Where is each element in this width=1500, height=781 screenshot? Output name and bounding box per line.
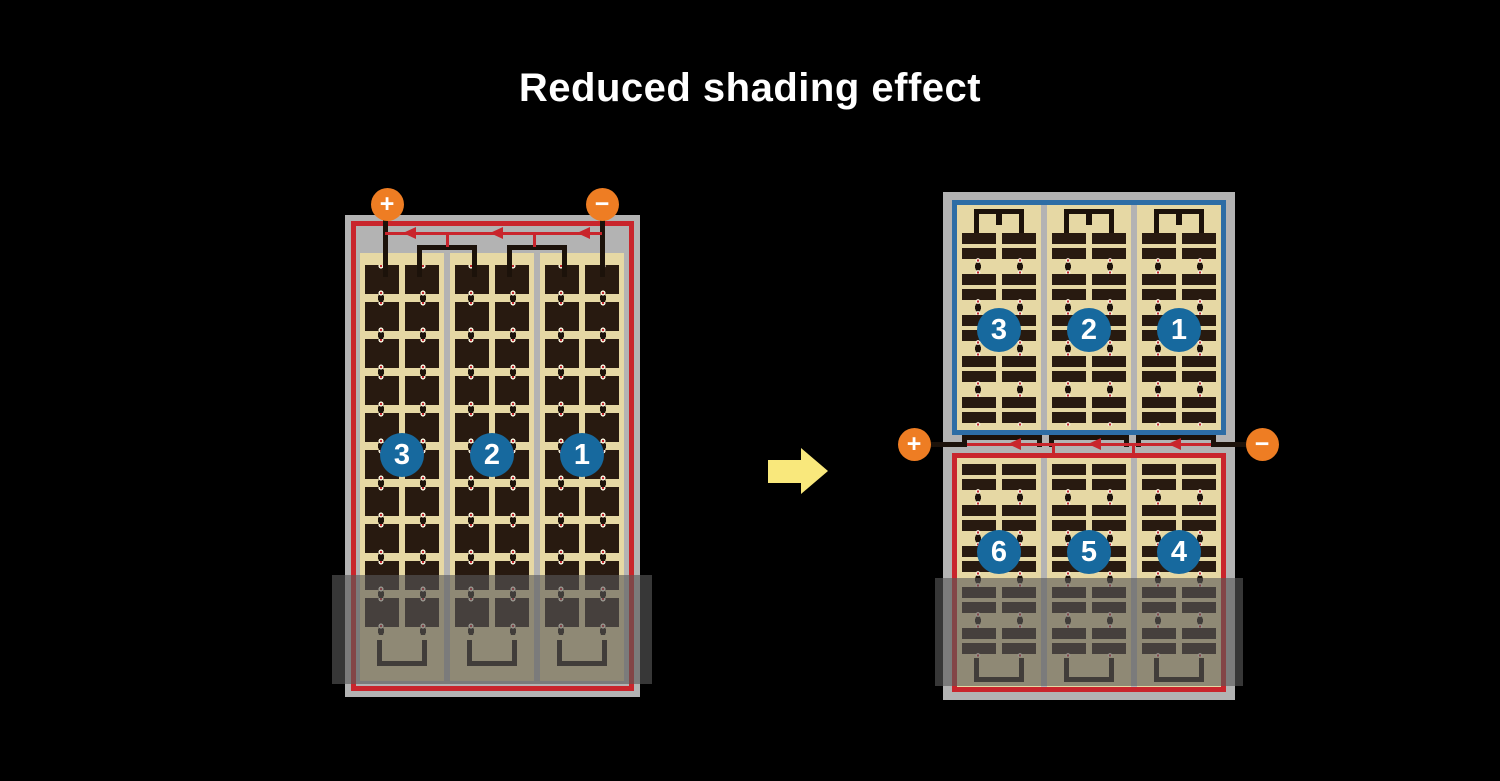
right-top-half: 3 2 1 (952, 200, 1226, 435)
diagram-stage: Reduced shading effect (0, 0, 1500, 781)
bypass-diode-icon (490, 227, 503, 239)
flow-arrow-head (801, 448, 828, 494)
string-number-badge: 2 (470, 433, 514, 477)
string-number-badge: 6 (977, 530, 1021, 574)
bypass-diode-icon (403, 227, 416, 239)
positive-terminal: + (371, 188, 404, 221)
shading-overlay (332, 575, 652, 684)
right-module-panel: 3 2 1 (943, 192, 1235, 700)
string-number-badge: 4 (1157, 530, 1201, 574)
positive-terminal-wire (930, 442, 967, 447)
string-number-badge: 1 (560, 433, 604, 477)
string-number-badge: 2 (1067, 308, 1111, 352)
junction-wire (962, 435, 1042, 440)
string-number-badge: 5 (1067, 530, 1111, 574)
string-number-badge: 3 (380, 433, 424, 477)
top-trace (417, 245, 477, 277)
positive-terminal: + (898, 428, 931, 461)
left-module-panel: + − 3 2 1 (345, 215, 640, 697)
flow-arrow-icon (768, 448, 828, 495)
shading-overlay (935, 578, 1243, 686)
bypass-diode-icon (1088, 438, 1101, 450)
flow-arrow-bar (768, 460, 801, 483)
string-number-badge: 1 (1157, 308, 1201, 352)
negative-terminal: − (1246, 428, 1279, 461)
diode-junction-tick (1052, 446, 1055, 453)
page-title: Reduced shading effect (0, 66, 1500, 111)
negative-terminal: − (586, 188, 619, 221)
bypass-diode-icon (577, 227, 590, 239)
diode-junction-tick (446, 234, 449, 247)
negative-terminal-wire (1211, 442, 1248, 447)
string-number-badge: 3 (977, 308, 1021, 352)
bypass-diode-icon (1008, 438, 1021, 450)
top-trace (1154, 209, 1204, 233)
bypass-diode-icon (1168, 438, 1181, 450)
center-junction-strip (952, 435, 1226, 453)
top-trace (974, 209, 1024, 233)
top-trace (507, 245, 567, 277)
diode-junction-tick (533, 234, 536, 247)
top-trace (1064, 209, 1114, 233)
diode-junction-tick (1132, 446, 1135, 453)
